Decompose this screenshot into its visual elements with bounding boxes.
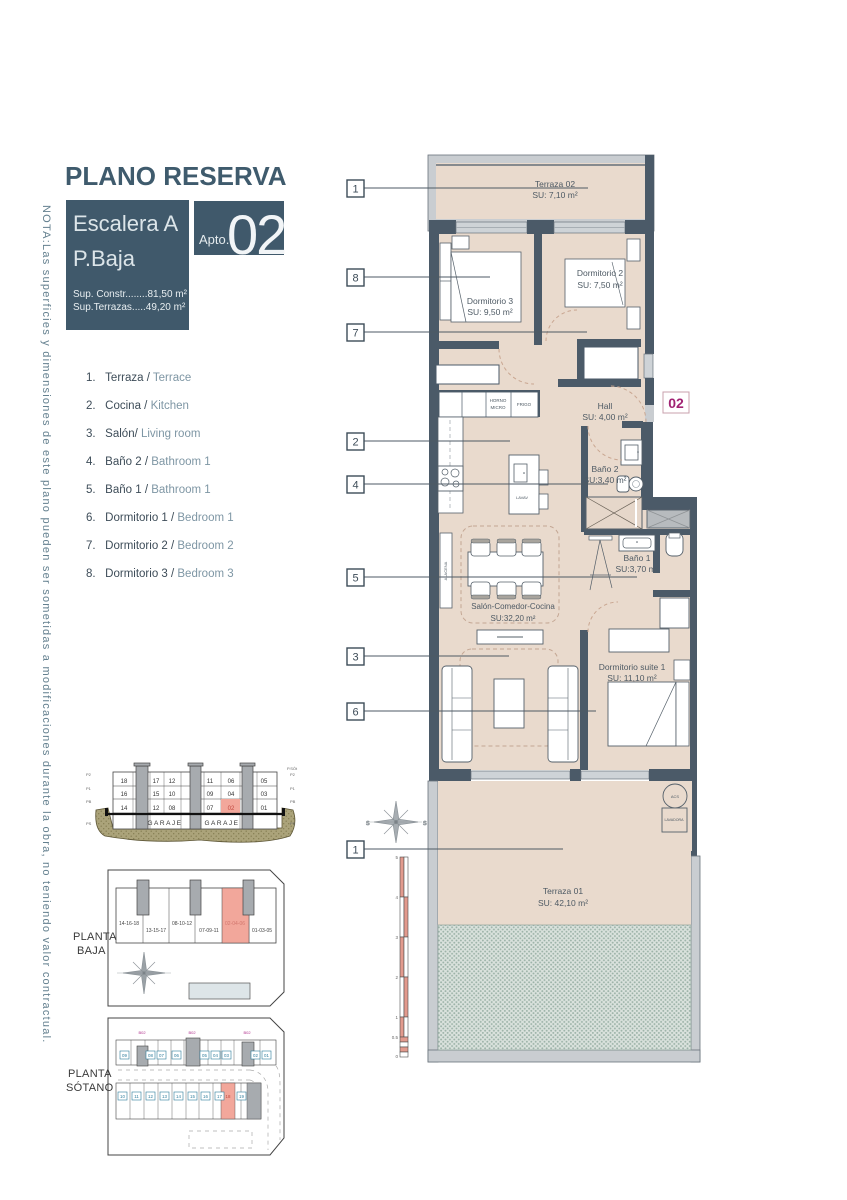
svg-text:12: 12 [169,779,176,785]
svg-text:4: 4 [395,895,398,900]
svg-text:PLANTA: PLANTA [68,1068,112,1080]
svg-text:15: 15 [190,1094,195,1099]
svg-text:Hall: Hall [598,401,613,411]
svg-text:SU: 7,50 m²: SU: 7,50 m² [577,280,623,290]
svg-text:GARAJE: GARAJE [147,820,182,827]
svg-text:2: 2 [395,975,398,980]
svg-text:02: 02 [253,1053,258,1058]
svg-text:SU: 42,10 m²: SU: 42,10 m² [538,898,588,908]
svg-text:SU: 11,10 m²: SU: 11,10 m² [607,673,657,683]
svg-text:05: 05 [261,779,268,785]
svg-text:19: 19 [239,1094,244,1099]
svg-text:15: 15 [153,792,160,798]
svg-text:14: 14 [176,1094,181,1099]
svg-text:Salón-Comedor-Cocina: Salón-Comedor-Cocina [471,602,555,611]
svg-text:07: 07 [159,1053,164,1058]
svg-text:12: 12 [148,1094,153,1099]
svg-text:14: 14 [121,806,128,812]
svg-text:09: 09 [122,1053,127,1058]
svg-text:17: 17 [217,1094,222,1099]
svg-text:PB: PB [290,799,296,804]
svg-text:04: 04 [213,1053,218,1058]
svg-text:6: 6 [352,707,358,719]
svg-text:02: 02 [668,395,684,411]
svg-text:1: 1 [395,1015,398,1020]
svg-text:P2: P2 [86,772,92,777]
svg-text:Baño 2: Baño 2 [592,464,619,474]
svg-text:SU:3,70 m²: SU:3,70 m² [616,564,659,574]
svg-text:7: 7 [352,328,358,340]
svg-text:11: 11 [207,779,214,785]
svg-text:B02: B02 [138,1030,146,1035]
svg-text:08: 08 [169,806,176,812]
svg-text:BAJA: BAJA [77,945,106,957]
svg-text:11: 11 [134,1094,139,1099]
svg-text:17: 17 [153,779,160,785]
svg-text:P1: P1 [86,786,92,791]
svg-text:12: 12 [153,806,160,812]
svg-text:B02: B02 [188,1030,196,1035]
svg-text:1: 1 [352,845,358,857]
svg-text:B02: B02 [243,1030,251,1035]
svg-text:07: 07 [207,806,214,812]
svg-text:3: 3 [352,652,358,664]
svg-text:PS: PS [290,821,296,826]
svg-text:GARAJE: GARAJE [204,820,239,827]
svg-text:18: 18 [226,1094,231,1099]
svg-text:Dormitorio suite 1: Dormitorio suite 1 [599,662,666,672]
svg-text:16: 16 [203,1094,208,1099]
svg-text:FRIGO: FRIGO [517,402,532,407]
svg-text:14-16-18: 14-16-18 [119,921,139,927]
svg-text:02-04-06: 02-04-06 [225,921,245,927]
svg-text:5: 5 [395,855,398,860]
svg-text:18: 18 [121,779,128,785]
svg-text:P2: P2 [290,772,296,777]
svg-text:SU:32,20 m²: SU:32,20 m² [491,614,536,623]
svg-text:MICRO: MICRO [491,405,506,410]
svg-text:03: 03 [224,1053,229,1058]
svg-text:01: 01 [261,806,268,812]
svg-text:SU: 7,10 m²: SU: 7,10 m² [532,190,578,200]
svg-text:16: 16 [121,792,128,798]
svg-text:2: 2 [352,437,358,449]
svg-text:04: 04 [228,792,235,798]
svg-text:Baño 1: Baño 1 [624,553,651,563]
svg-text:02: 02 [228,806,235,812]
svg-text:10: 10 [169,792,176,798]
svg-text:08-10-12: 08-10-12 [172,921,192,927]
svg-text:SÓTANO: SÓTANO [66,1081,114,1094]
svg-text:PS: PS [86,821,92,826]
svg-text:0: 0 [395,1054,398,1059]
svg-text:PLANTA: PLANTA [73,931,117,943]
svg-text:0.5: 0.5 [392,1035,399,1040]
svg-text:13-15-17: 13-15-17 [146,928,166,934]
svg-text:09: 09 [207,792,214,798]
svg-text:03: 03 [261,792,268,798]
svg-text:8: 8 [352,273,358,285]
svg-text:06: 06 [174,1053,179,1058]
svg-text:5: 5 [352,573,358,585]
svg-text:Terraza 01: Terraza 01 [543,886,583,896]
svg-text:P1: P1 [290,786,296,791]
svg-text:LAVADORA: LAVADORA [664,818,684,822]
svg-text:S: S [366,821,370,827]
svg-text:Dormitorio 3: Dormitorio 3 [467,296,514,306]
svg-text:Dormitorio 2: Dormitorio 2 [577,268,624,278]
svg-text:01: 01 [264,1053,269,1058]
svg-text:4: 4 [352,480,358,492]
svg-text:ACS: ACS [671,794,680,799]
svg-text:10: 10 [120,1094,125,1099]
svg-text:01-03-05: 01-03-05 [252,928,272,934]
svg-text:HORNO: HORNO [490,398,507,403]
svg-text:05: 05 [202,1053,207,1058]
svg-text:SU: 9,50 m²: SU: 9,50 m² [467,307,513,317]
svg-text:1: 1 [352,184,358,196]
svg-text:LAVAV: LAVAV [516,495,528,500]
svg-text:13: 13 [162,1094,167,1099]
svg-text:07-09-11: 07-09-11 [199,928,219,934]
svg-text:06: 06 [228,779,235,785]
svg-text:P.SÓt: P.SÓt [287,766,298,771]
svg-text:S: S [423,821,427,827]
svg-text:PB: PB [86,799,92,804]
svg-text:3: 3 [395,935,398,940]
svg-text:08: 08 [148,1053,153,1058]
svg-text:SU: 4,00 m²: SU: 4,00 m² [582,412,628,422]
